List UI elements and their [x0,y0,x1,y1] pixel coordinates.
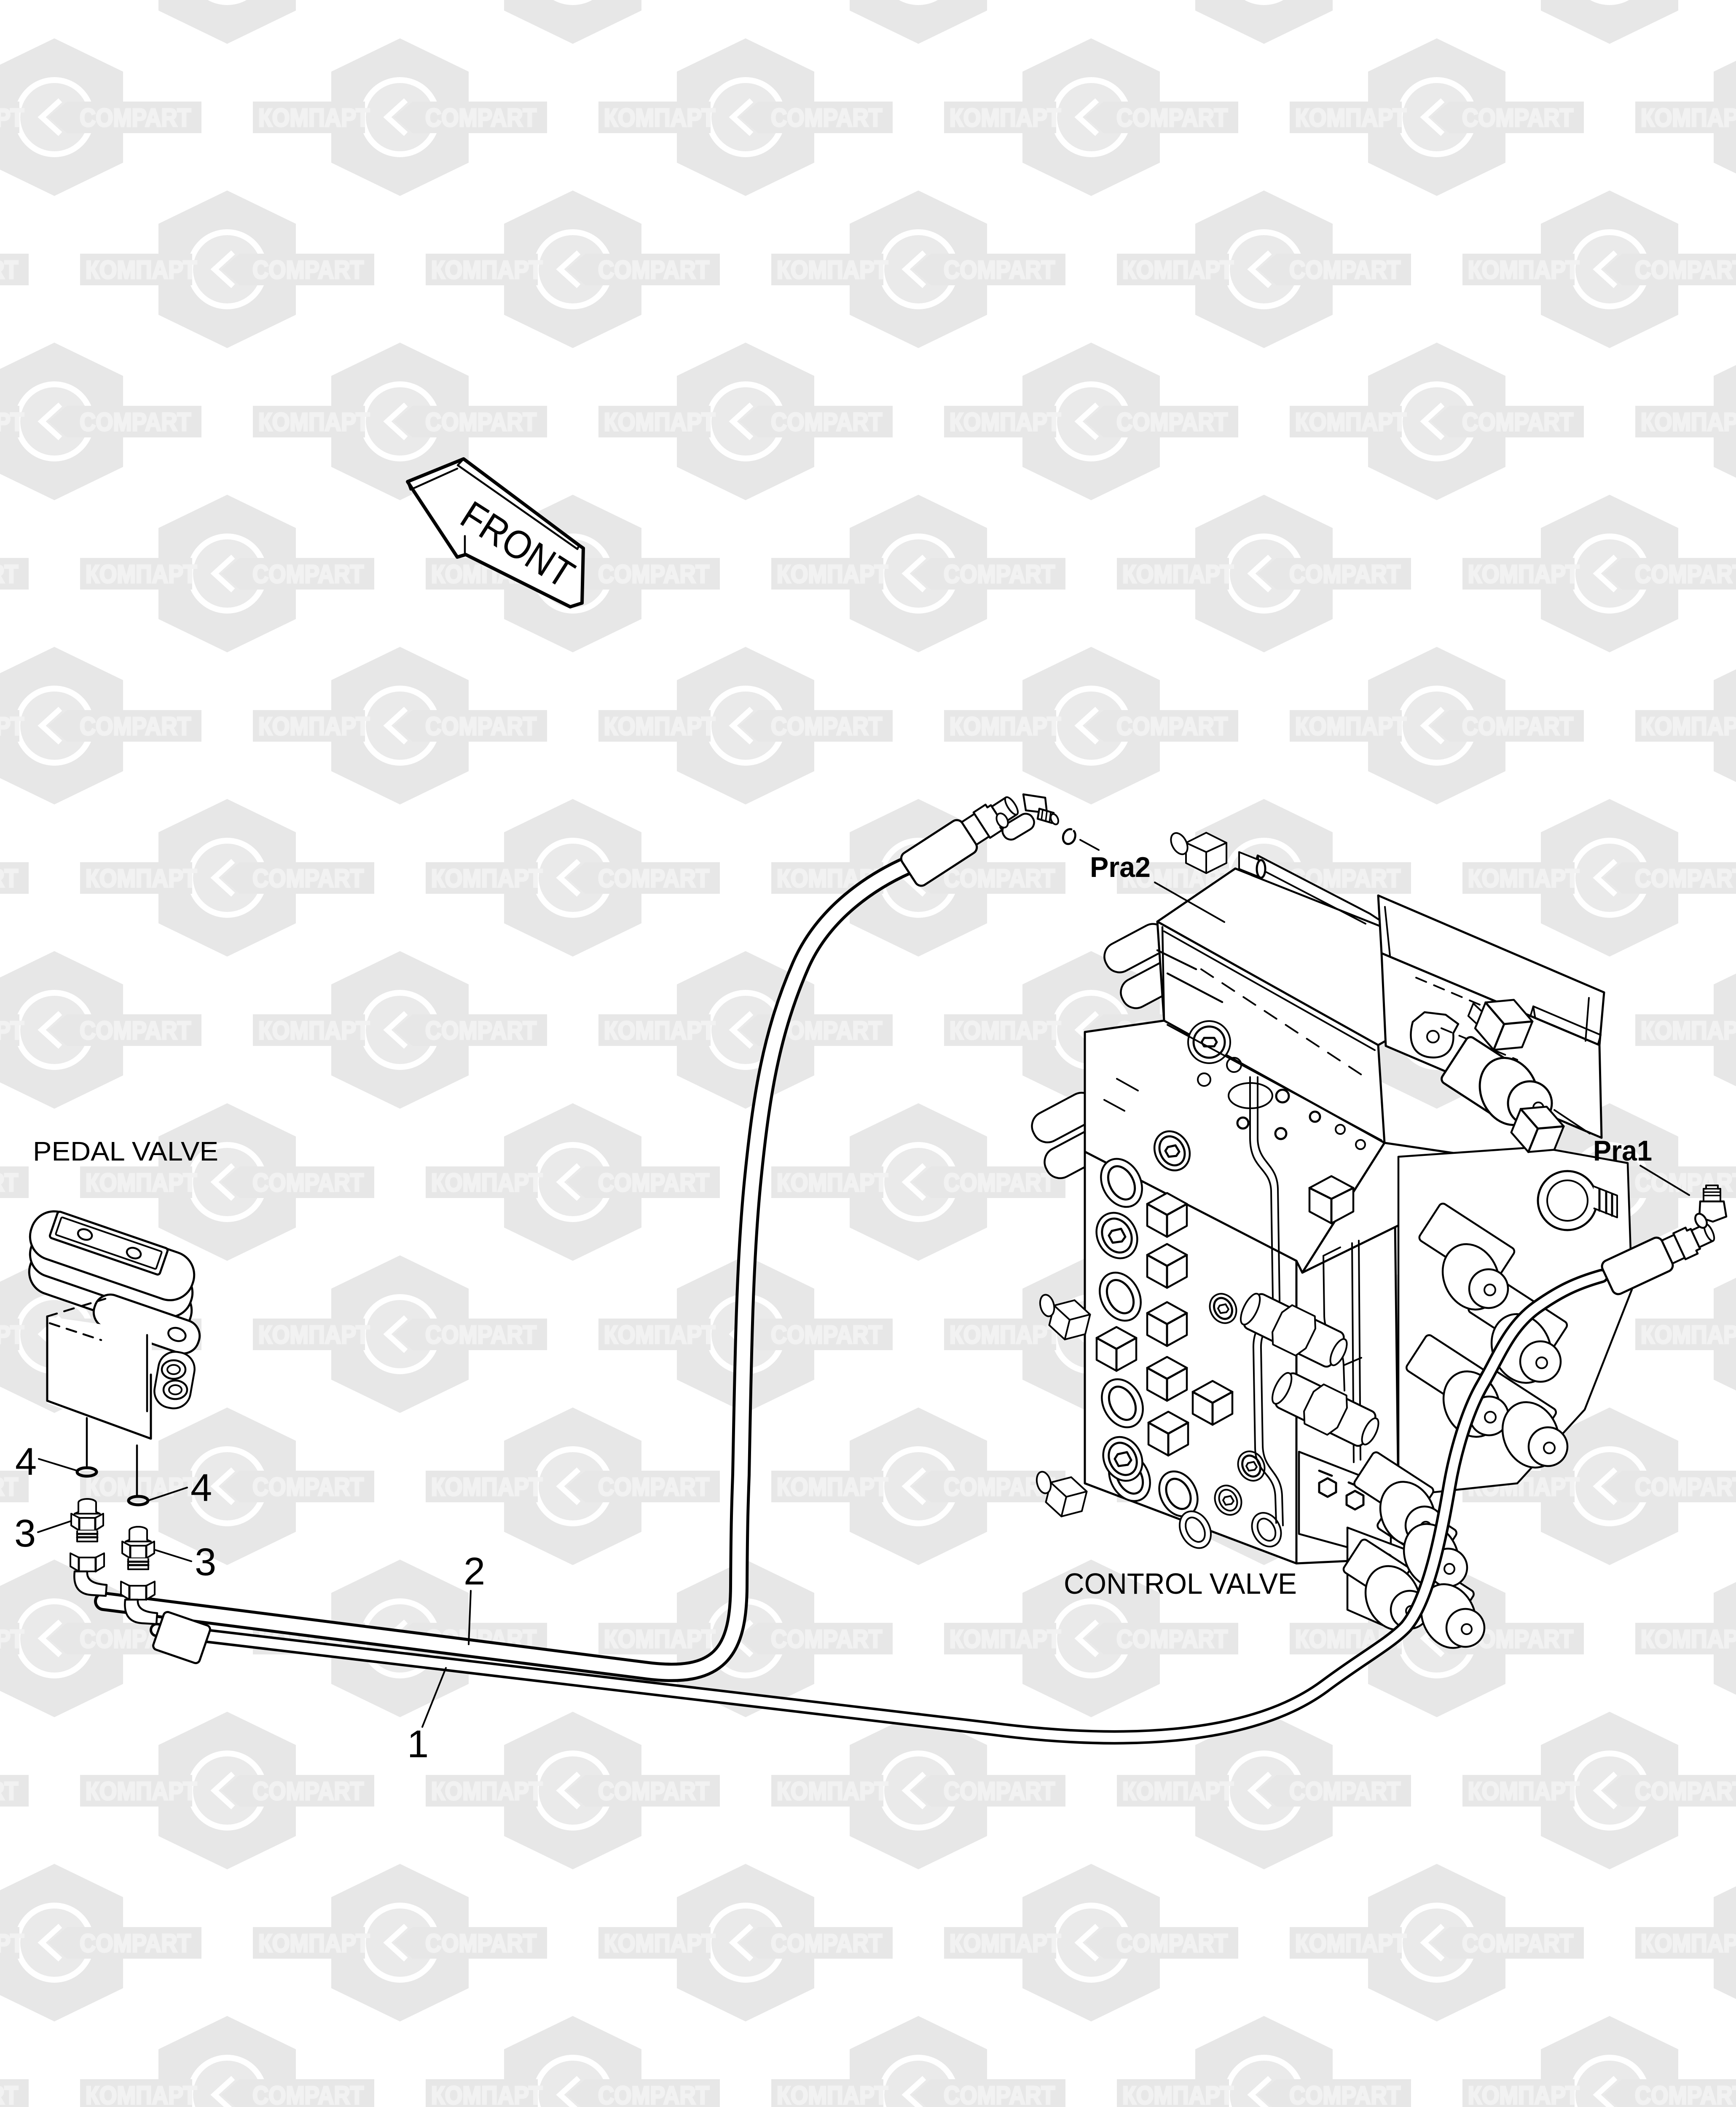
svg-text:4: 4 [191,1466,212,1509]
svg-text:Pra2: Pra2 [1090,851,1151,883]
svg-text:3: 3 [14,1512,36,1555]
svg-text:2: 2 [464,1550,485,1593]
svg-text:CONTROL VALVE: CONTROL VALVE [1064,1567,1297,1600]
svg-text:3: 3 [195,1541,216,1584]
svg-text:Pra1: Pra1 [1593,1135,1652,1167]
svg-text:4: 4 [15,1440,37,1483]
svg-text:PEDAL VALVE: PEDAL VALVE [33,1136,218,1166]
svg-text:1: 1 [407,1723,429,1766]
